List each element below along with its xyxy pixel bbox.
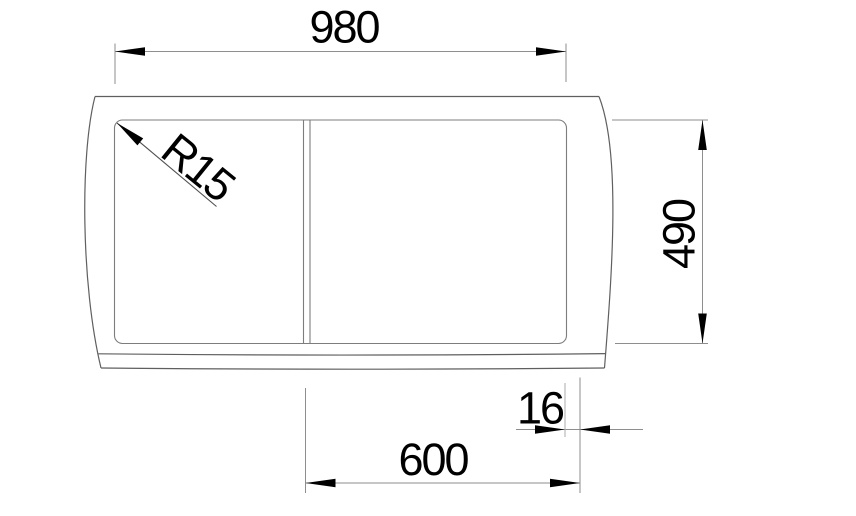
arrow-980-left [115, 47, 145, 56]
sink-outer-shell [85, 97, 613, 370]
dim-label-overall-width: 980 [309, 2, 379, 53]
dim-label-corner-radius: R15 [152, 123, 244, 211]
technical-drawing-canvas: 980 490 16 600 R15 [0, 0, 856, 516]
arrowheads [115, 47, 707, 487]
arrow-490-top [698, 120, 707, 150]
dimension-labels: 980 490 16 600 R15 [152, 2, 704, 486]
dim-label-overall-depth: 490 [654, 199, 705, 269]
dim-label-edge-offset: 16 [517, 383, 564, 434]
sink-left-wavy-edge [85, 97, 101, 369]
arrow-490-bottom [698, 314, 707, 344]
arrow-radius-leader [117, 123, 143, 145]
arrow-16-right [580, 425, 610, 434]
arrow-980-right [536, 47, 566, 56]
dimension-lines [115, 44, 708, 494]
sink-dimension-drawing: 980 490 16 600 R15 [0, 0, 856, 516]
arrow-600-left [306, 479, 336, 488]
dim-label-bowl-width: 600 [398, 434, 468, 485]
arrow-600-right [550, 479, 580, 488]
sink-right-wavy-edge [599, 97, 613, 369]
sink-bottom-upper-edge [99, 354, 607, 355]
sink-bottom-lower-edge [101, 368, 605, 369]
